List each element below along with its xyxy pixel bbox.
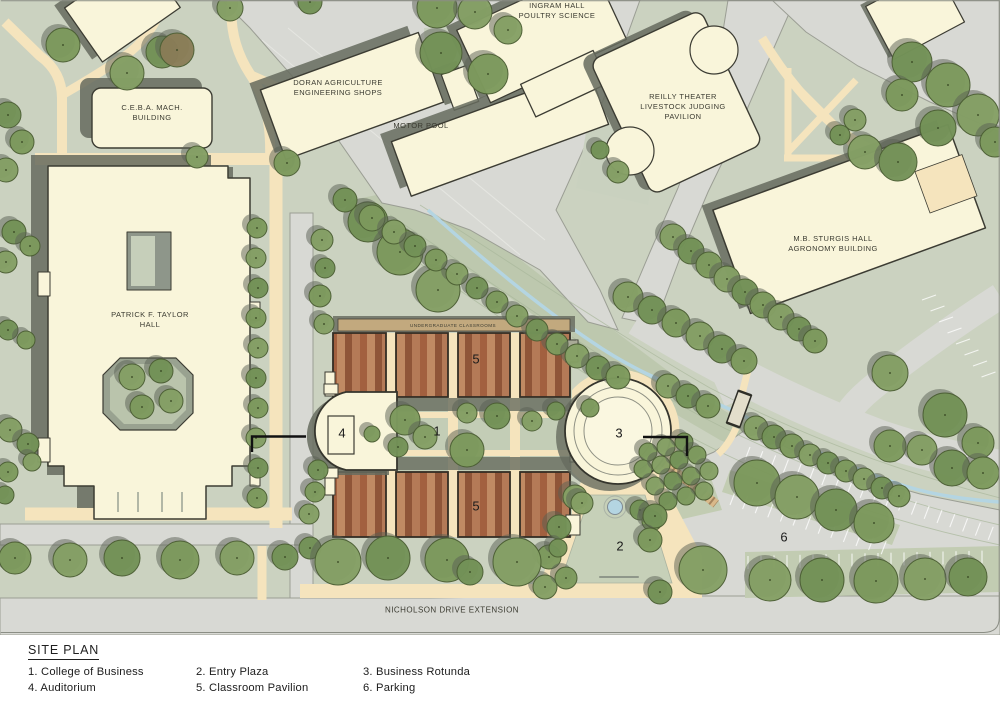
legend: SITE PLAN 1. College of Business 2. Entr… [0, 635, 1000, 710]
building-taylor-hall [31, 155, 260, 519]
legend-item-business-rotunda: 3. Business Rotunda [363, 666, 470, 678]
legend-item-entry-plaza: 2. Entry Plaza [196, 666, 268, 678]
road-south-of-taylor [0, 524, 313, 545]
fountain [608, 500, 623, 515]
legend-item-parking: 6. Parking [363, 682, 415, 694]
road-nicholson [0, 592, 1000, 635]
site-plan-drawing [0, 0, 1000, 635]
site-plan-map: C.E.B.A. MACH. BUILDINGDORAN AGRICULTURE… [0, 0, 1000, 635]
legend-item-college-of-business: 1. College of Business [28, 666, 144, 678]
site-plan-page: C.E.B.A. MACH. BUILDINGDORAN AGRICULTURE… [0, 0, 1000, 710]
legend-item-classroom-pavilion: 5. Classroom Pavilion [196, 682, 308, 694]
legend-item-auditorium: 4. Auditorium [28, 682, 96, 694]
building-ceba [80, 78, 212, 148]
legend-title: SITE PLAN [28, 643, 99, 660]
taylor-courtyard-north [127, 232, 171, 290]
